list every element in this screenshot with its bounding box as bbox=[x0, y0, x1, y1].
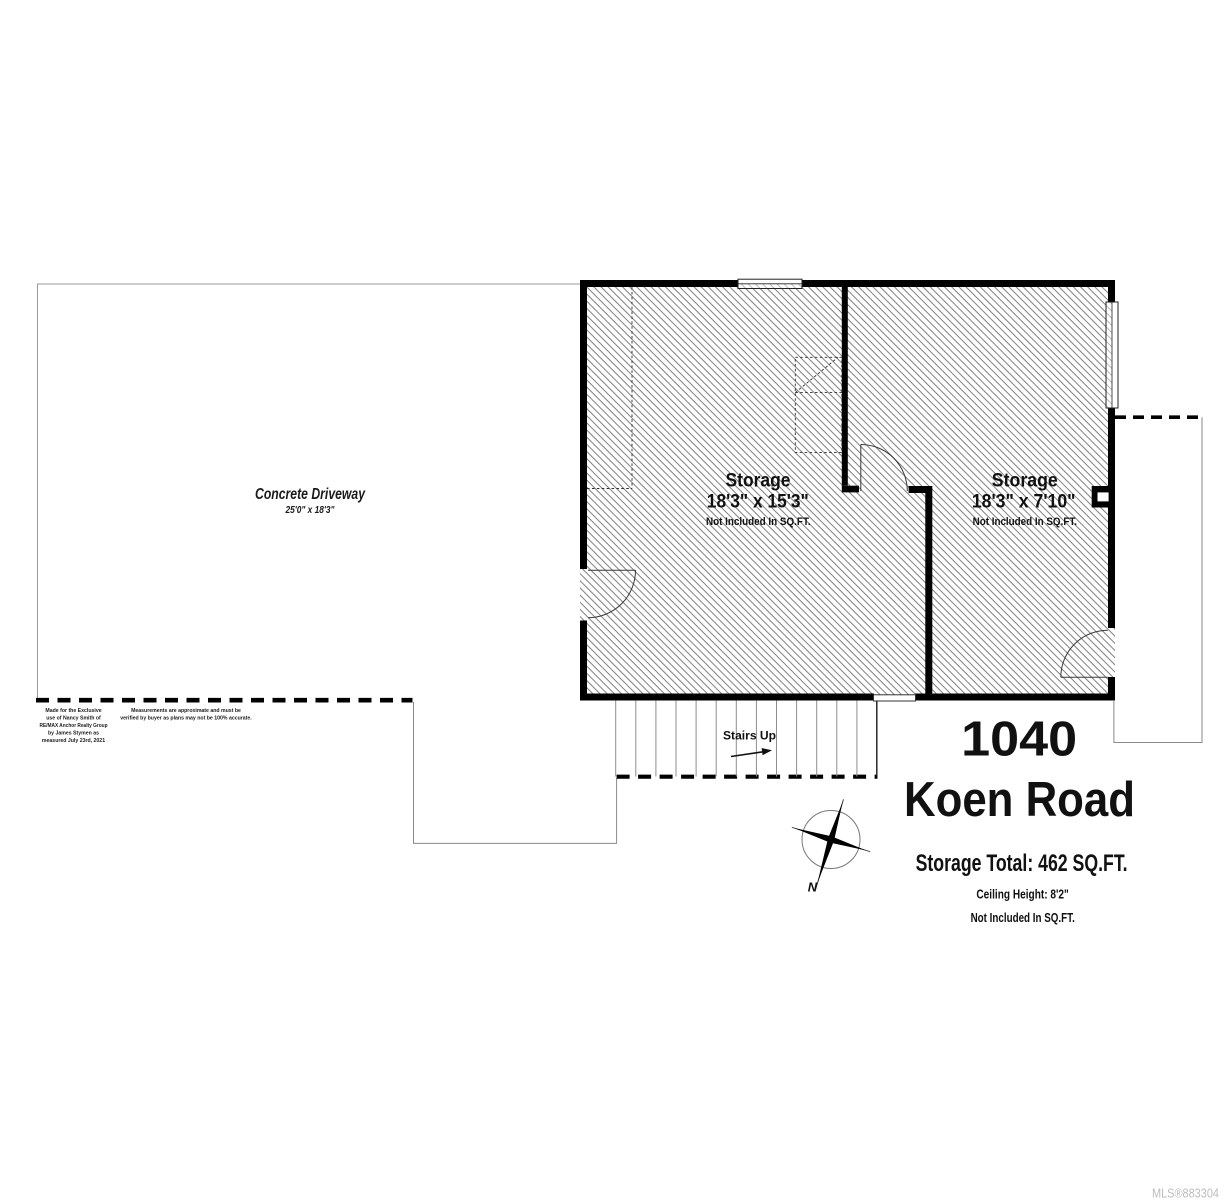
svg-text:Storage: Storage bbox=[992, 471, 1058, 492]
svg-text:Stairs Up: Stairs Up bbox=[723, 729, 776, 743]
svg-text:Not Included In SQ.FT.: Not Included In SQ.FT. bbox=[973, 516, 1077, 528]
svg-text:Made for the Exclusive: Made for the Exclusive bbox=[45, 708, 101, 714]
svg-text:Storage: Storage bbox=[726, 471, 791, 492]
svg-text:Storage Total: 462 SQ.FT.: Storage Total: 462 SQ.FT. bbox=[916, 850, 1128, 877]
svg-text:verified by buyer as plans may: verified by buyer as plans may not be 10… bbox=[120, 716, 252, 722]
svg-text:Not Included In SQ.FT.: Not Included In SQ.FT. bbox=[706, 516, 811, 528]
svg-text:1040: 1040 bbox=[961, 713, 1077, 767]
svg-text:by James Stymen as: by James Stymen as bbox=[48, 731, 99, 737]
svg-text:N: N bbox=[808, 880, 818, 895]
svg-text:25'0" x 18'3": 25'0" x 18'3" bbox=[285, 504, 336, 516]
svg-text:Measurements are approximate a: Measurements are approximate and must be bbox=[131, 708, 241, 714]
svg-text:Not Included In SQ.FT.: Not Included In SQ.FT. bbox=[971, 911, 1075, 925]
svg-text:Koen Road: Koen Road bbox=[904, 772, 1135, 827]
svg-text:RE/MAX Anchor Realty Group: RE/MAX Anchor Realty Group bbox=[40, 723, 108, 729]
svg-text:measured July 23rd, 2021: measured July 23rd, 2021 bbox=[42, 738, 105, 744]
svg-text:use of Nancy Smith of: use of Nancy Smith of bbox=[46, 716, 101, 722]
svg-text:Ceiling Height: 8'2": Ceiling Height: 8'2" bbox=[976, 888, 1068, 902]
svg-text:18'3" x 15'3": 18'3" x 15'3" bbox=[707, 491, 809, 513]
svg-text:18'3" x 7'10": 18'3" x 7'10" bbox=[972, 491, 1076, 513]
svg-text:Concrete Driveway: Concrete Driveway bbox=[255, 486, 366, 503]
svg-text:MLS®883304: MLS®883304 bbox=[1152, 1186, 1219, 1200]
